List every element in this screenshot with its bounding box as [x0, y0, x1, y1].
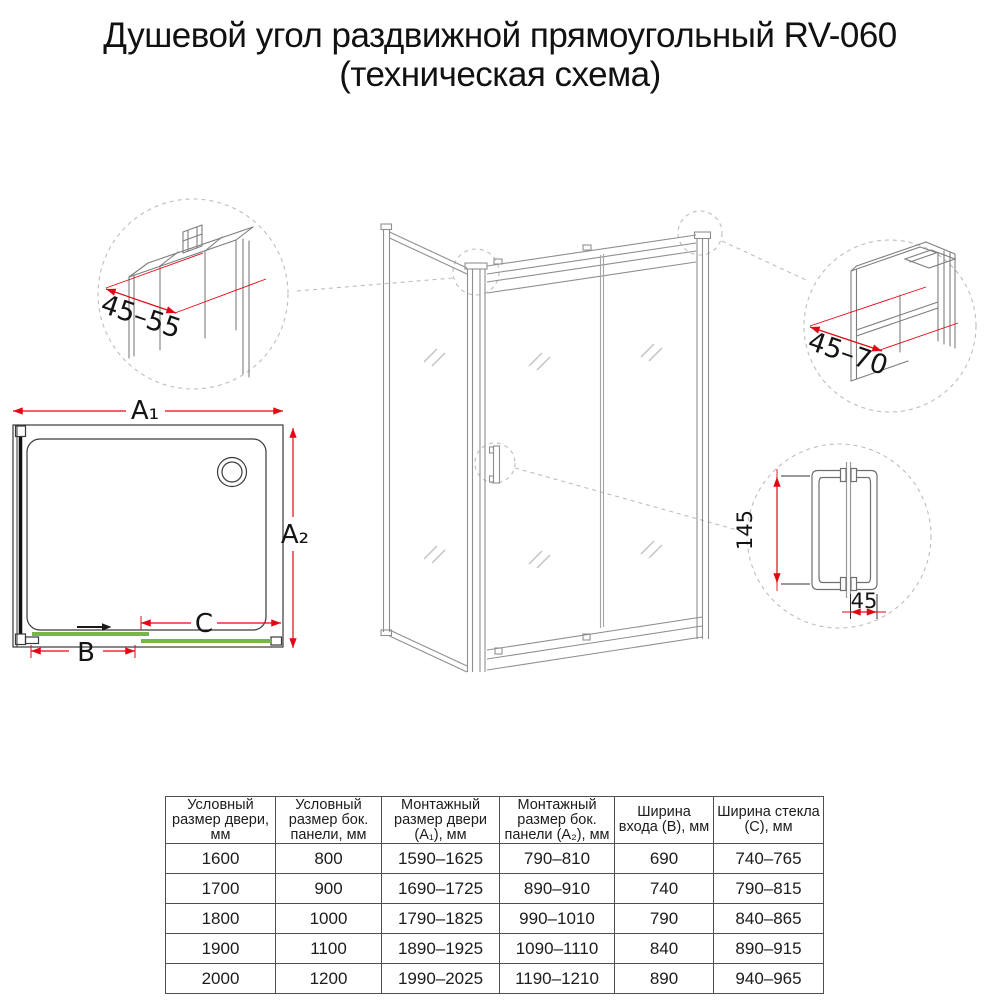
callout-ring-corner — [453, 249, 499, 295]
plan-dimension-labels: A₁ A₂ C B — [77, 396, 309, 668]
label-c: C — [195, 609, 213, 639]
table-cell: 1800 — [166, 904, 276, 934]
label-a2: A₂ — [281, 520, 309, 550]
size-table-body: 16008001590–1625790–810690740–7651700900… — [166, 844, 824, 994]
wall-profile-range-label: 45–55 — [97, 289, 185, 345]
table-cell: 1590–1625 — [382, 844, 500, 874]
plan-view — [13, 425, 283, 647]
handle-dimensions: 145 45 — [733, 469, 886, 619]
callout-ring-handle — [475, 443, 515, 483]
label-b: B — [77, 638, 95, 668]
table-cell: 900 — [276, 874, 382, 904]
callout-connector-right — [722, 241, 806, 280]
glass-shine-marks — [424, 344, 662, 568]
table-cell: 840–865 — [714, 904, 824, 934]
header-door-nominal: Условный размер двери, мм — [166, 797, 276, 844]
detail-circle-wall-profile — [98, 199, 288, 389]
callout-connector-left — [297, 278, 453, 291]
table-row: 200012001990–20251190–1210890940–965 — [166, 964, 824, 994]
size-table-header: Условный размер двери, мм Условный разме… — [166, 797, 824, 844]
dimension-wall-profile: 45–55 — [97, 253, 266, 345]
size-table: Условный размер двери, мм Условный разме… — [165, 796, 824, 994]
plan-dimensions — [13, 411, 293, 658]
table-cell: 1090–1110 — [500, 934, 615, 964]
dimension-door-profile: 45–70 — [804, 287, 958, 382]
isometric-view — [381, 224, 711, 672]
top-roller-right — [583, 245, 591, 250]
sliding-doors-plan — [32, 634, 271, 641]
callout-connector-handle — [515, 468, 748, 533]
door-profile-range-label: 45–70 — [804, 326, 892, 382]
page: Душевой угол раздвижной прямоугольный RV… — [0, 0, 1000, 1000]
table-cell: 740 — [615, 874, 714, 904]
header-door-mounting: Монтажный размер двери (A₁), мм — [382, 797, 500, 844]
callout-ring-top-right — [678, 211, 722, 255]
table-cell: 890 — [615, 964, 714, 994]
table-cell: 1190–1210 — [500, 964, 615, 994]
table-row: 180010001790–1825990–1010790840–865 — [166, 904, 824, 934]
handle-detail-drawing — [812, 462, 877, 598]
table-cell: 790 — [615, 904, 714, 934]
table-cell: 890–910 — [500, 874, 615, 904]
table-cell: 840 — [615, 934, 714, 964]
table-cell: 1100 — [276, 934, 382, 964]
table-cell: 790–810 — [500, 844, 615, 874]
table-cell: 1200 — [276, 964, 382, 994]
wall-profile-detail-drawing — [129, 225, 253, 377]
header-entry-width: Ширина входа (B), мм — [615, 797, 714, 844]
table-cell: 1000 — [276, 904, 382, 934]
table-cell: 1600 — [166, 844, 276, 874]
table-cell: 1990–2025 — [382, 964, 500, 994]
table-cell: 800 — [276, 844, 382, 874]
table-header-row: Условный размер двери, мм Условный разме… — [166, 797, 824, 844]
table-cell: 1790–1825 — [382, 904, 500, 934]
header-glass-width: Ширина стекла (C), мм — [714, 797, 824, 844]
table-cell: 1700 — [166, 874, 276, 904]
table-cell: 790–815 — [714, 874, 824, 904]
table-cell: 690 — [615, 844, 714, 874]
callout-circles — [98, 199, 976, 628]
detail-circle-handle — [747, 444, 931, 628]
table-row: 16008001590–1625790–810690740–765 — [166, 844, 824, 874]
handle-depth-label: 45 — [851, 589, 878, 613]
table-cell: 1690–1725 — [382, 874, 500, 904]
table-cell: 2000 — [166, 964, 276, 994]
table-row: 17009001690–1725890–910740790–815 — [166, 874, 824, 904]
table-cell: 1890–1925 — [382, 934, 500, 964]
door-handle-3d — [490, 446, 500, 483]
table-cell: 940–965 — [714, 964, 824, 994]
handle-length-label: 145 — [733, 510, 757, 550]
table-cell: 990–1010 — [500, 904, 615, 934]
label-a1: A₁ — [131, 396, 159, 426]
table-cell: 890–915 — [714, 934, 824, 964]
table-cell: 740–765 — [714, 844, 824, 874]
table-row: 190011001890–19251090–1110840890–915 — [166, 934, 824, 964]
header-panel-nominal: Условный размер бок. панели, мм — [276, 797, 382, 844]
header-panel-mounting: Монтажный размер бок. панели (A₂), мм — [500, 797, 615, 844]
handle-mount-knobs — [841, 469, 857, 591]
drain-circle-inner — [222, 462, 242, 482]
table-cell: 1900 — [166, 934, 276, 964]
